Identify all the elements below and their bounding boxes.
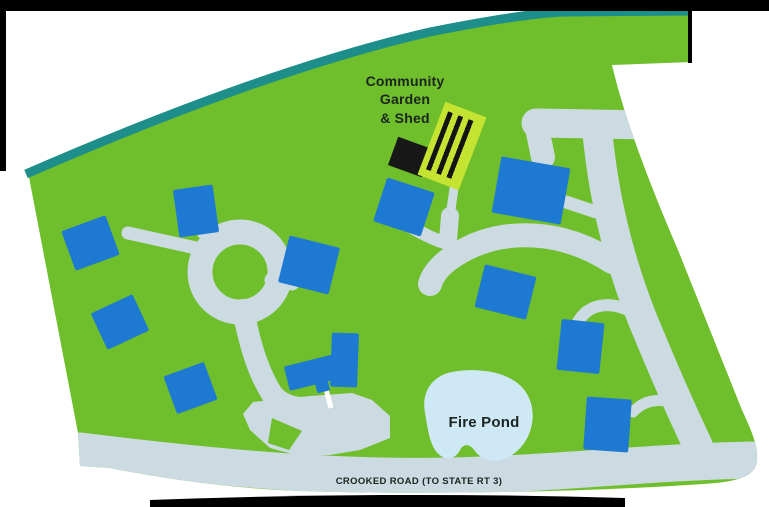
frame-bottom xyxy=(0,0,769,507)
site-plan-map: Community Garden & Shed Fire Pond CROOKE… xyxy=(0,0,769,507)
